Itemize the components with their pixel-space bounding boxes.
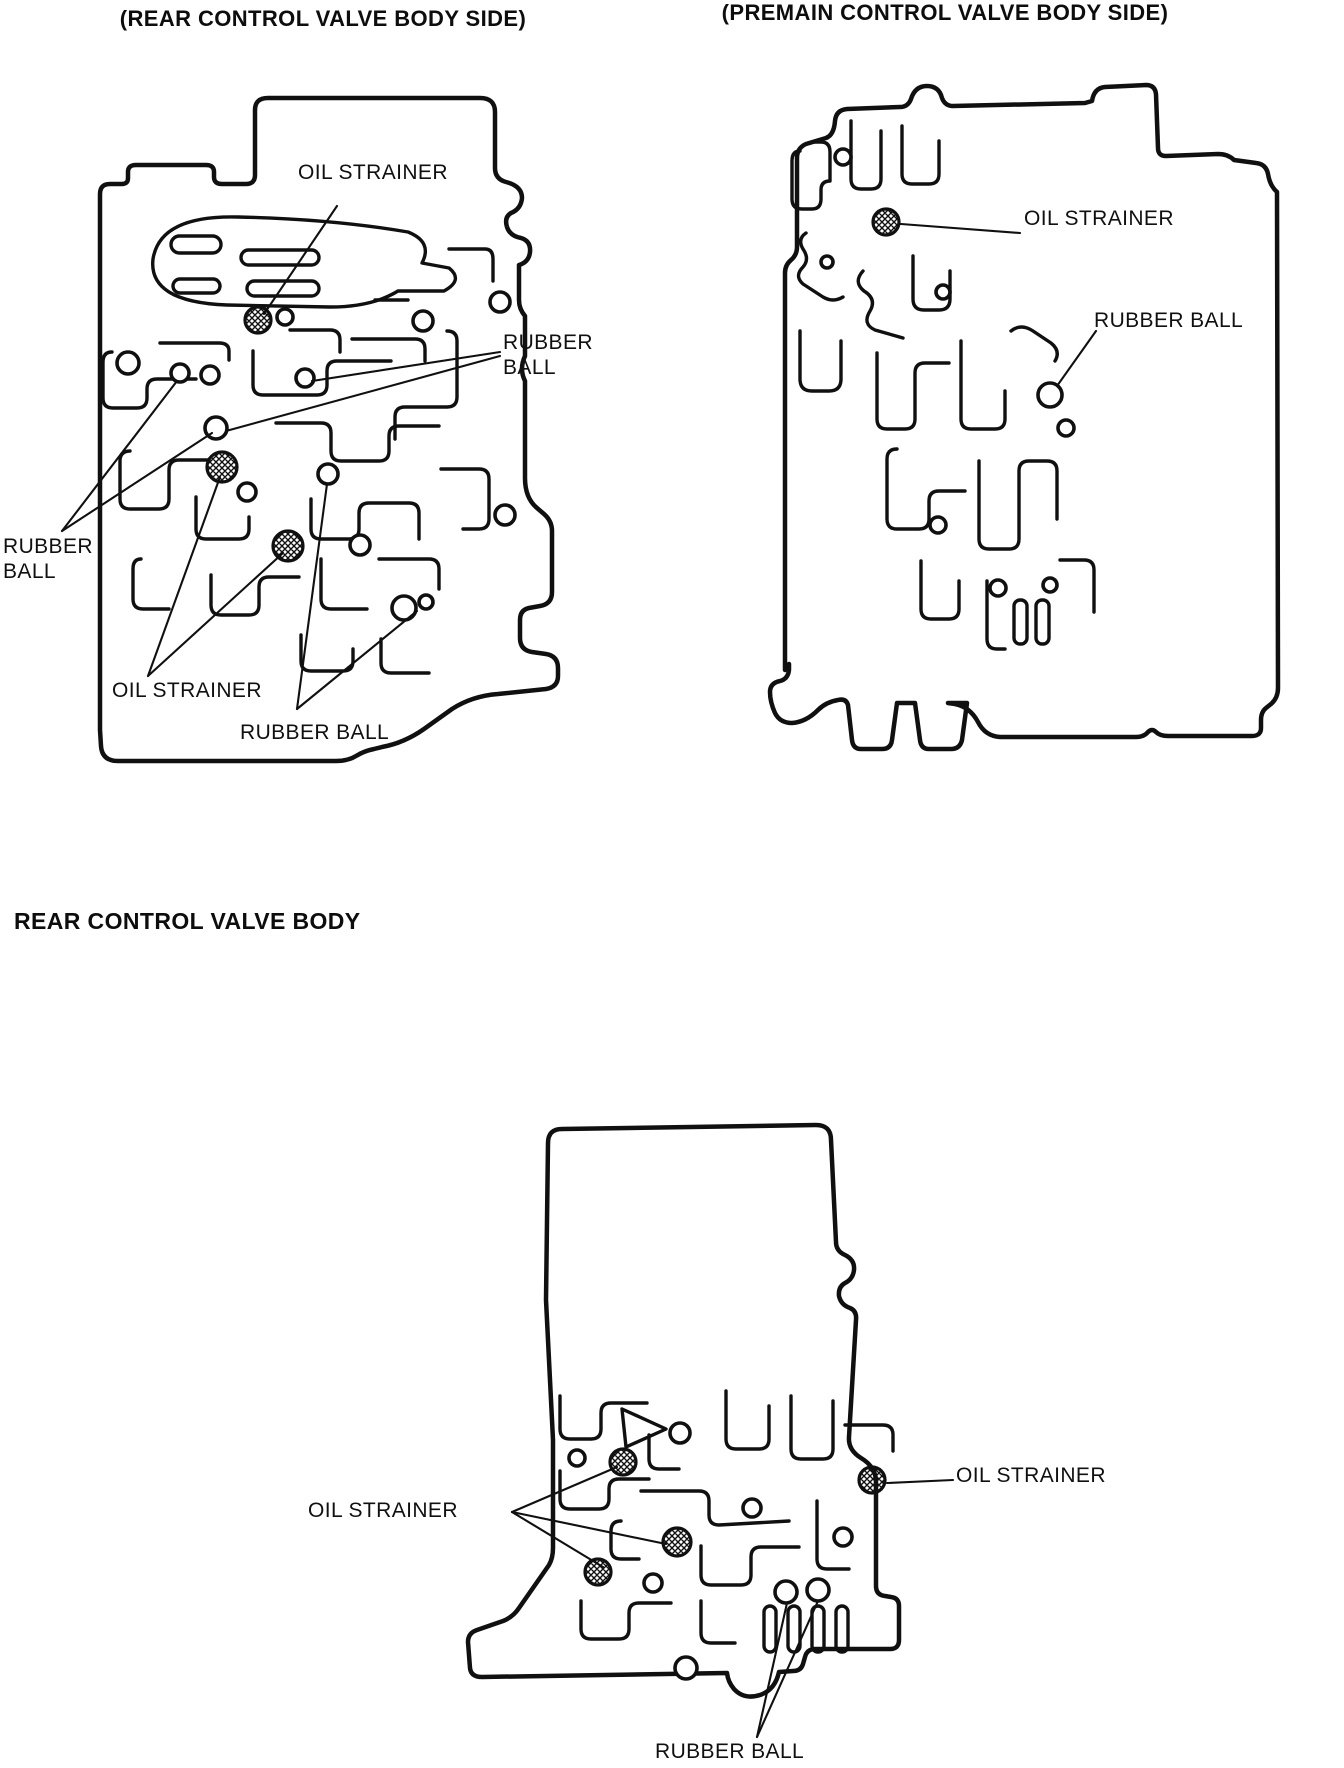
rubber-ball-marker: [419, 595, 433, 609]
oil-strainer-marker: [207, 452, 237, 482]
rubber-ball-marker: [318, 464, 338, 484]
leader-line: [297, 611, 417, 709]
rear-side-title: (REAR CONTROL VALVE BODY SIDE): [88, 6, 558, 32]
rubber-ball-marker: [807, 1579, 829, 1601]
rear-body-heading: REAR CONTROL VALVE BODY: [14, 908, 361, 935]
rubber-ball-marker: [117, 352, 139, 374]
oil-strainer-marker: [663, 1528, 691, 1556]
rear-body-channels: [560, 1391, 893, 1652]
rubber-ball-marker: [930, 517, 946, 533]
leader-line: [512, 1512, 603, 1567]
rubber-ball-marker: [392, 596, 416, 620]
label-rubber-ball-right: RUBBER BALL: [503, 331, 607, 381]
label-premain-oil-strainer: OIL STRAINER: [1024, 207, 1174, 232]
label-rubber-ball-bottom: RUBBER BALL: [240, 721, 389, 746]
leader-line: [148, 553, 283, 676]
leader-line: [62, 433, 212, 531]
leader-line: [1057, 331, 1096, 386]
leader-line: [512, 1467, 617, 1512]
leader-line: [148, 477, 220, 676]
rubber-ball-marker: [413, 311, 433, 331]
rubber-ball-marker: [350, 535, 370, 555]
rubber-ball-marker: [569, 1450, 585, 1466]
leader-line: [512, 1512, 666, 1544]
rear-body-oil-strainer-markers: [585, 1449, 885, 1585]
label-rubber-ball-left: RUBBER BALL: [3, 535, 107, 585]
leader-line: [312, 352, 500, 381]
label-rear-body-oil-strainer-right: OIL STRAINER: [956, 1464, 1106, 1489]
label-oil-strainer-top: OIL STRAINER: [298, 161, 448, 186]
valve-body-diagrams: [0, 0, 1344, 1768]
rubber-ball-marker: [1038, 383, 1062, 407]
rubber-ball-marker: [936, 285, 950, 299]
rubber-ball-marker: [644, 1574, 662, 1592]
rubber-ball-marker: [171, 364, 189, 382]
label-oil-strainer-bottom: OIL STRAINER: [112, 679, 262, 704]
label-rear-body-rubber-ball: RUBBER BALL: [655, 1740, 804, 1765]
rubber-ball-marker: [1058, 420, 1074, 436]
oil-strainer-marker: [859, 1467, 885, 1493]
premain-body-outline: [770, 85, 1278, 749]
rubber-ball-marker: [490, 292, 510, 312]
leader-line: [887, 1480, 953, 1483]
premain-side-title: (PREMAIN CONTROL VALVE BODY SIDE): [690, 0, 1200, 26]
rear-body-diagram: [468, 1125, 953, 1737]
leader-line: [264, 206, 337, 314]
premain-side-diagram: [770, 85, 1278, 749]
premain-oil-strainer-markers: [873, 209, 899, 235]
rear-side-diagram: [62, 98, 558, 761]
rubber-ball-marker: [990, 580, 1006, 596]
rubber-ball-marker: [201, 366, 219, 384]
rubber-ball-marker: [743, 1499, 761, 1517]
oil-strainer-marker: [873, 209, 899, 235]
rubber-ball-marker: [296, 369, 314, 387]
rubber-ball-marker: [495, 505, 515, 525]
rubber-ball-marker: [238, 483, 256, 501]
rubber-ball-marker: [835, 149, 851, 165]
rubber-ball-marker: [670, 1423, 690, 1443]
rubber-ball-marker: [1043, 578, 1057, 592]
oil-strainer-marker: [610, 1449, 636, 1475]
rubber-ball-marker: [775, 1581, 797, 1603]
label-premain-rubber-ball: RUBBER BALL: [1094, 309, 1243, 334]
label-rear-body-oil-strainer-left: OIL STRAINER: [308, 1499, 458, 1524]
rubber-ball-marker: [277, 309, 293, 325]
manual-page: (REAR CONTROL VALVE BODY SIDE) (PREMAIN …: [0, 0, 1344, 1768]
leader-line: [901, 224, 1020, 233]
oil-strainer-marker: [273, 531, 303, 561]
rubber-ball-marker: [821, 256, 833, 268]
rear-side-channels: [103, 217, 493, 673]
rubber-ball-marker: [675, 1657, 697, 1679]
rubber-ball-marker: [834, 1528, 852, 1546]
